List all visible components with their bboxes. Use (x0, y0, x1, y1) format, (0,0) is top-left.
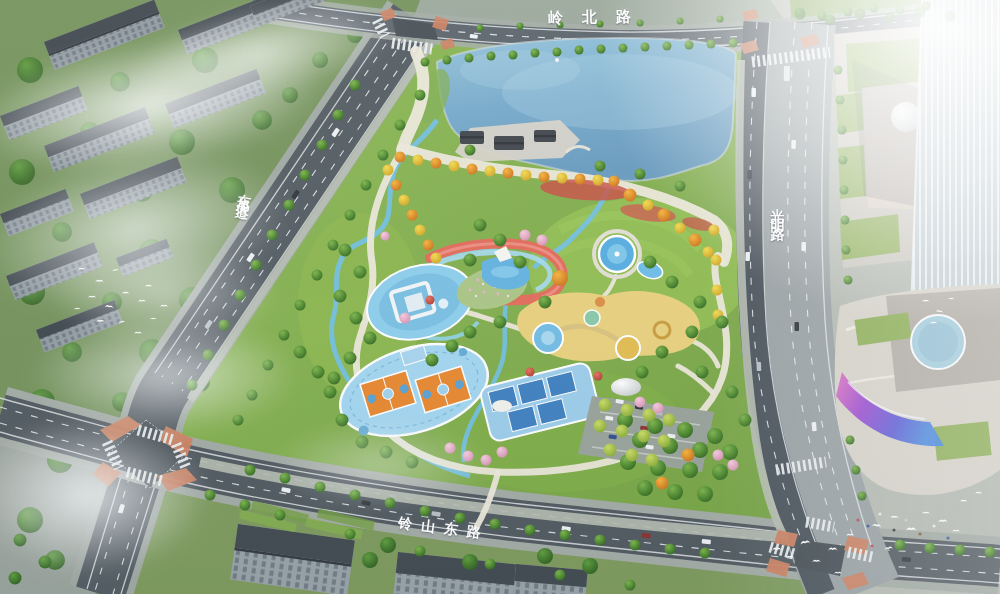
tent-structure (492, 400, 512, 412)
aerial-render: 岭北路 东旭大道 光明路 铃山东路 (0, 0, 1000, 594)
rooftop-blue-pad (911, 315, 965, 369)
road-label-dongxu: 东旭大道 (235, 182, 255, 201)
dome-structure (611, 378, 641, 396)
road-label-lingbei: 岭北路 (548, 7, 650, 28)
scene-canvas (0, 0, 1000, 594)
fountain-pool (594, 231, 640, 277)
road-label-guangming: 光明路 (769, 198, 787, 225)
